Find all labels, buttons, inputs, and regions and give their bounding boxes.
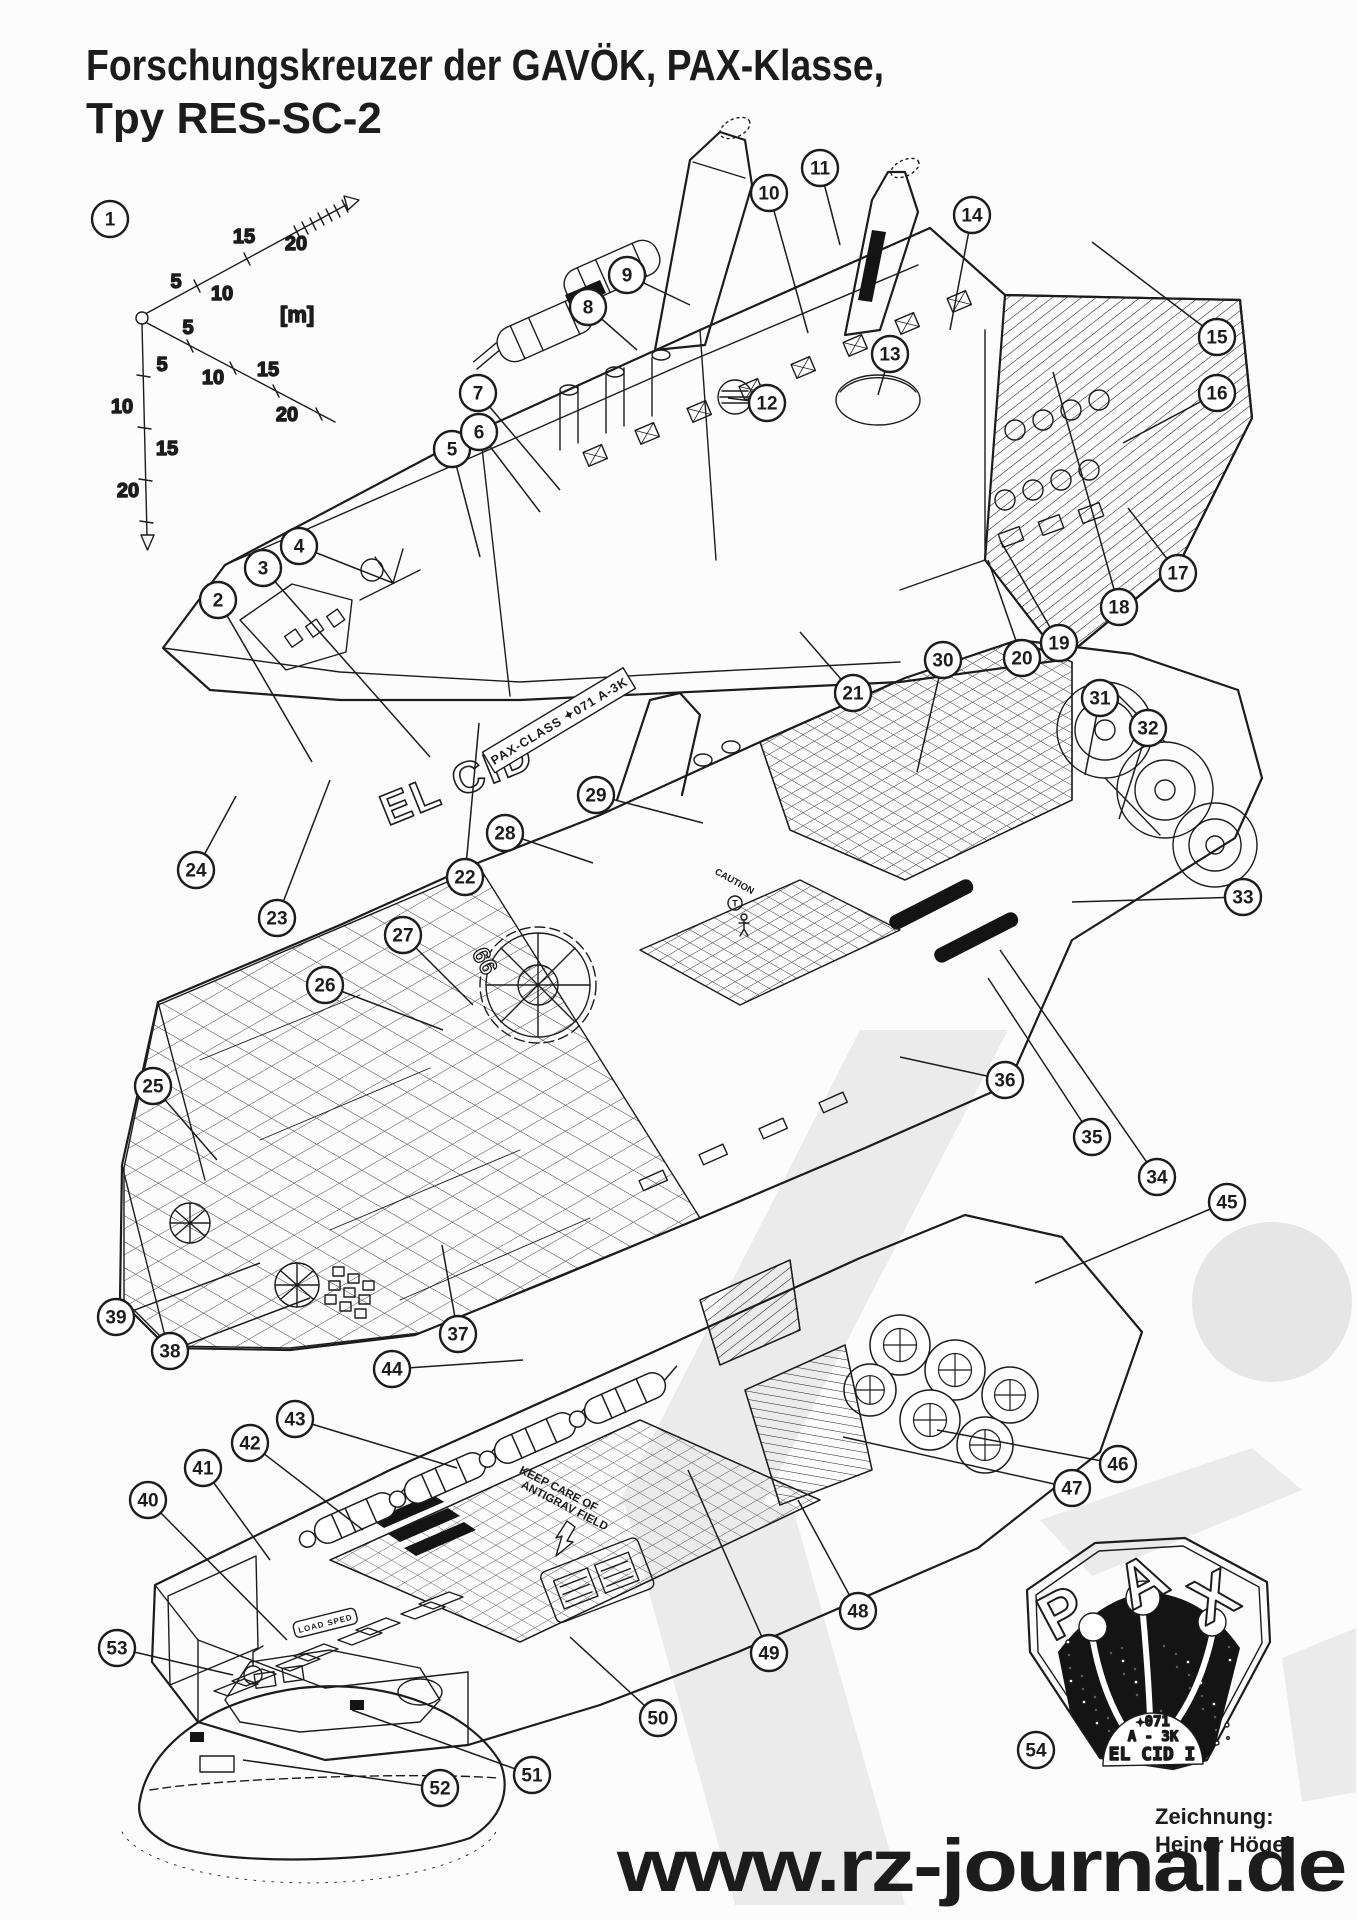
svg-text:24: 24 [185,861,207,882]
svg-text:10: 10 [111,396,133,418]
svg-text:2: 2 [213,591,224,612]
scale-figure: [m] 510152051015205101520 [111,196,359,550]
scale-unit-label: [m] [280,302,314,327]
svg-text:46: 46 [1107,1455,1128,1476]
svg-text:33: 33 [1232,888,1253,909]
svg-text:5: 5 [447,440,458,461]
callout-13: 13 [872,336,908,395]
svg-text:38: 38 [159,1342,180,1363]
callout-44: 44 [374,1351,523,1387]
callout-52: 52 [243,1760,458,1806]
svg-text:9: 9 [622,266,633,287]
svg-text:37: 37 [447,1325,468,1346]
watermark-url: www.rz-journal.de [616,1824,1345,1907]
svg-text:15: 15 [156,438,178,460]
svg-text:44: 44 [381,1360,403,1381]
badge-reg-3: EL CID I [1109,1744,1196,1765]
svg-text:20: 20 [285,233,307,255]
svg-text:CAUTION: CAUTION [713,867,756,898]
svg-text:22: 22 [454,868,475,889]
callout-31: 31 [1082,680,1118,775]
svg-text:54: 54 [1025,1741,1047,1762]
load-plate: LOAD SPED [292,1607,358,1638]
svg-text:14: 14 [961,206,983,227]
callout-1: 1 [92,201,128,237]
svg-text:20: 20 [276,404,298,426]
svg-text:36: 36 [994,1071,1015,1092]
class-plate: PAX-CLASS ✦071 A-3K [483,668,636,773]
window-row [583,291,971,467]
svg-text:12: 12 [756,394,777,415]
svg-text:1: 1 [105,210,116,231]
callout-6: 6 [461,414,540,512]
callout-4: 4 [281,528,393,583]
svg-text:51: 51 [521,1766,543,1787]
svg-text:50: 50 [647,1709,668,1730]
svg-text:16: 16 [1206,384,1227,405]
svg-text:30: 30 [932,651,953,672]
svg-text:7: 7 [473,384,484,405]
svg-text:41: 41 [192,1459,214,1480]
callout-10: 10 [751,175,808,333]
callout-34: 34 [1000,950,1175,1195]
svg-text:25: 25 [142,1077,164,1098]
callout-23: 23 [259,780,330,936]
callout-50: 50 [570,1637,676,1736]
badge-reg-1: ✦071 [1136,1714,1170,1730]
callout-41: 41 [185,1450,270,1560]
svg-text:49: 49 [758,1644,779,1665]
svg-text:26: 26 [314,976,335,997]
svg-text:45: 45 [1216,1193,1238,1214]
svg-text:17: 17 [1167,564,1188,585]
svg-text:29: 29 [585,786,606,807]
cutaway-diagram-page: Forschungskreuzer der GAVÖK, PAX-Klasse,… [0,0,1358,1920]
callout-43: 43 [277,1401,457,1468]
svg-text:4: 4 [294,537,305,558]
svg-text:20: 20 [117,480,139,502]
hull-chevron-stripes [214,1592,463,1696]
shuttle-craft [122,1650,505,1883]
svg-text:3: 3 [258,559,269,580]
svg-text:5: 5 [182,317,193,339]
callout-9: 9 [609,257,690,305]
page-title: Forschungskreuzer der GAVÖK, PAX-Klasse,… [86,41,884,143]
svg-text:10: 10 [202,367,224,389]
callout-32: 32 [1119,710,1166,819]
title-line-2: Tpy RES-SC-2 [86,94,382,143]
svg-text:53: 53 [106,1639,127,1660]
callout-54: 54 [1018,1732,1054,1768]
svg-text:40: 40 [137,1491,158,1512]
svg-text:28: 28 [494,824,515,845]
svg-text:52: 52 [429,1779,450,1800]
svg-text:15: 15 [1206,328,1228,349]
svg-text:20: 20 [1011,649,1032,670]
svg-text:8: 8 [583,298,594,319]
svg-text:35: 35 [1081,1128,1103,1149]
svg-text:10: 10 [211,283,233,305]
svg-text:5: 5 [156,354,167,376]
callout-24: 24 [178,796,236,888]
svg-text:43: 43 [284,1410,305,1431]
svg-text:47: 47 [1061,1479,1082,1500]
svg-text:42: 42 [239,1434,260,1455]
svg-text:19: 19 [1048,634,1069,655]
badge-reg-2: A - 3K [1128,1729,1179,1745]
svg-text:21: 21 [842,684,864,705]
svg-text:32: 32 [1137,719,1158,740]
svg-text:18: 18 [1108,598,1129,619]
svg-text:34: 34 [1146,1168,1168,1189]
callout-21: 21 [800,632,871,711]
svg-text:11: 11 [810,159,831,180]
svg-text:27: 27 [392,926,413,947]
svg-text:13: 13 [879,345,900,366]
pax-badge: P A X ✦071 A - 3K EL CID I [1026,1538,1270,1769]
svg-text:6: 6 [474,423,485,444]
svg-text:48: 48 [847,1602,868,1623]
caution-sign: CAUTION [713,867,756,898]
engine-cluster [844,1315,1038,1473]
svg-text:10: 10 [758,184,779,205]
svg-text:15: 15 [233,226,255,248]
scale-tick-labels: 510152051015205101520 [111,226,307,502]
upper-deck-cutaway [163,113,1252,700]
svg-text:5: 5 [170,271,181,293]
svg-text:23: 23 [266,909,287,930]
svg-text:39: 39 [105,1308,126,1329]
callout-8: 8 [570,289,637,350]
callout-53: 53 [99,1630,233,1675]
callout-3: 3 [245,550,430,757]
svg-text:15: 15 [257,359,279,381]
callout-33: 33 [1072,879,1261,915]
title-line-1: Forschungskreuzer der GAVÖK, PAX-Klasse, [86,41,884,90]
svg-text:31: 31 [1089,689,1111,710]
callout-11: 11 [802,150,840,245]
t-sign: T [732,899,738,909]
